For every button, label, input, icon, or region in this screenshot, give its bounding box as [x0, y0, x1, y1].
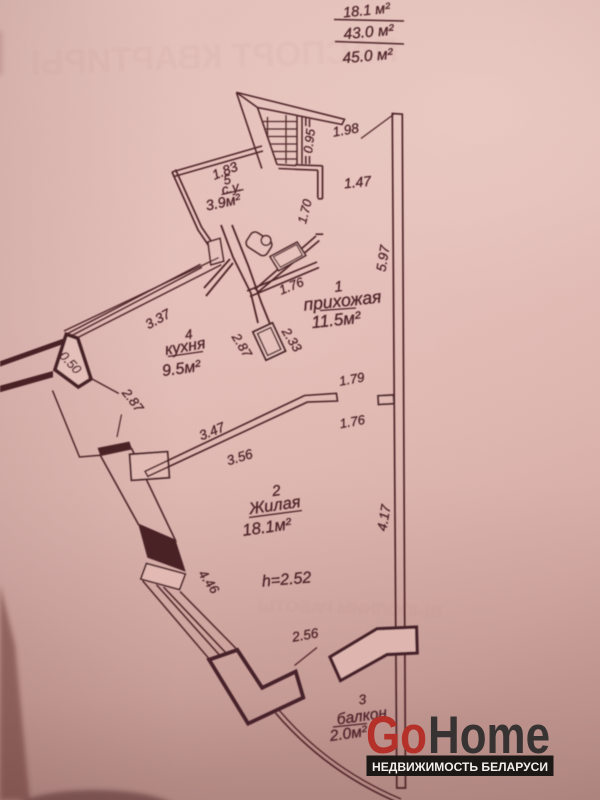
svg-text:0.95: 0.95: [301, 128, 318, 154]
svg-text:НЕДВИЖИМОСТЬ БЕЛАРУСИ: НЕДВИЖИМОСТЬ БЕЛАРУСИ: [372, 760, 548, 774]
svg-text:1.47: 1.47: [343, 173, 373, 192]
